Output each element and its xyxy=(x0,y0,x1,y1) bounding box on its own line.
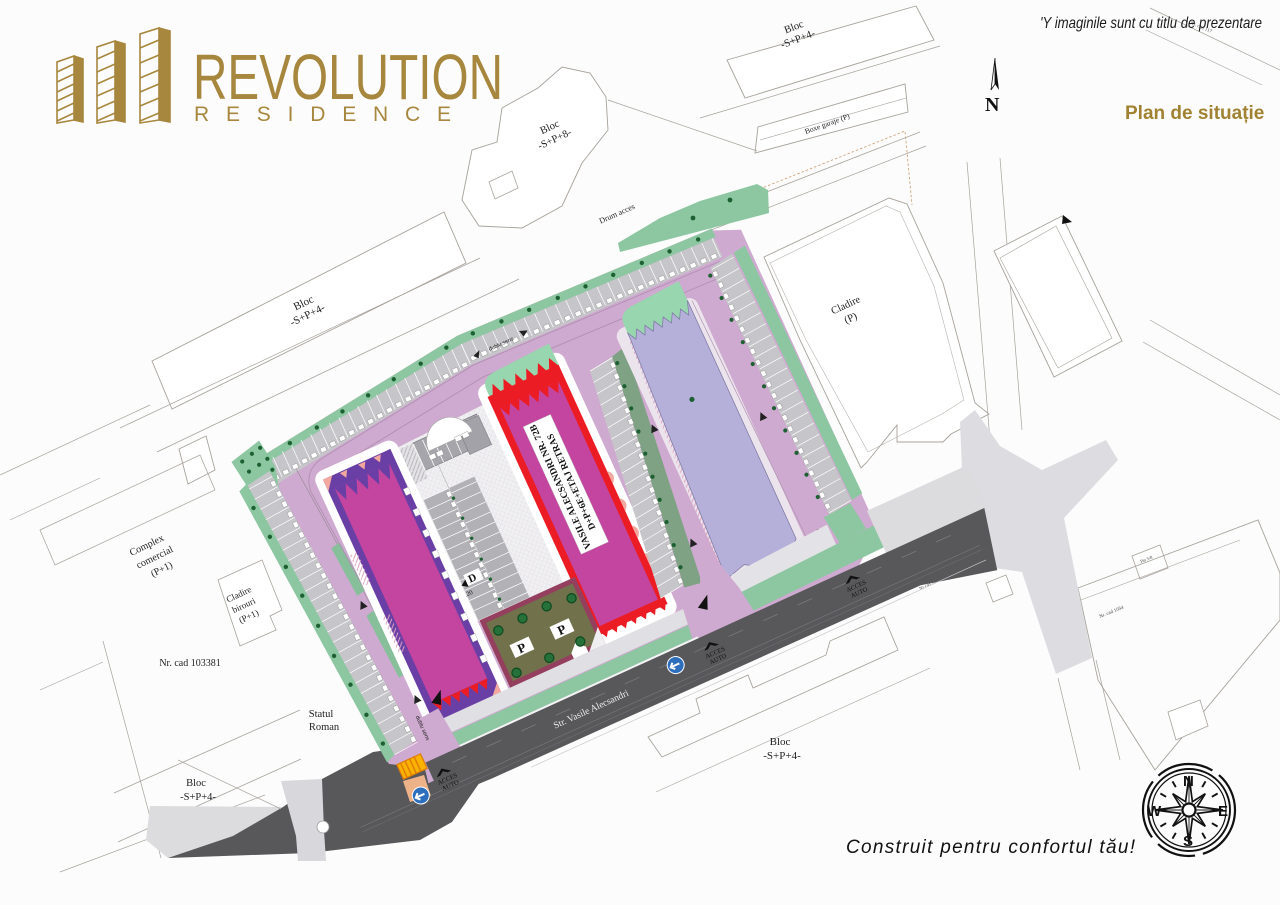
svg-text:Construit pentru confortul tău: Construit pentru confortul tău! xyxy=(846,837,1136,858)
svg-text:Plan de situație: Plan de situație xyxy=(1125,103,1264,124)
svg-text:Statul: Statul xyxy=(309,709,334,720)
svg-text:'Y imaginile sunt cu titlu de: 'Y imaginile sunt cu titlu de prezentare xyxy=(1040,15,1262,32)
svg-text:E: E xyxy=(1218,803,1228,820)
svg-text:N: N xyxy=(985,94,1000,116)
svg-text:Bloc: Bloc xyxy=(186,778,206,789)
svg-text:-S+P+4-: -S+P+4- xyxy=(180,792,216,803)
svg-text:Nr. cad 103381: Nr. cad 103381 xyxy=(159,658,220,669)
svg-text:RESIDENCE: RESIDENCE xyxy=(194,103,451,126)
svg-text:Roman: Roman xyxy=(309,722,340,733)
svg-text:N: N xyxy=(1183,773,1194,790)
svg-text:Bloc: Bloc xyxy=(770,736,791,748)
svg-text:-S+P+4-: -S+P+4- xyxy=(763,750,801,762)
svg-text:S: S xyxy=(1183,833,1193,850)
svg-text:W: W xyxy=(1147,803,1162,820)
